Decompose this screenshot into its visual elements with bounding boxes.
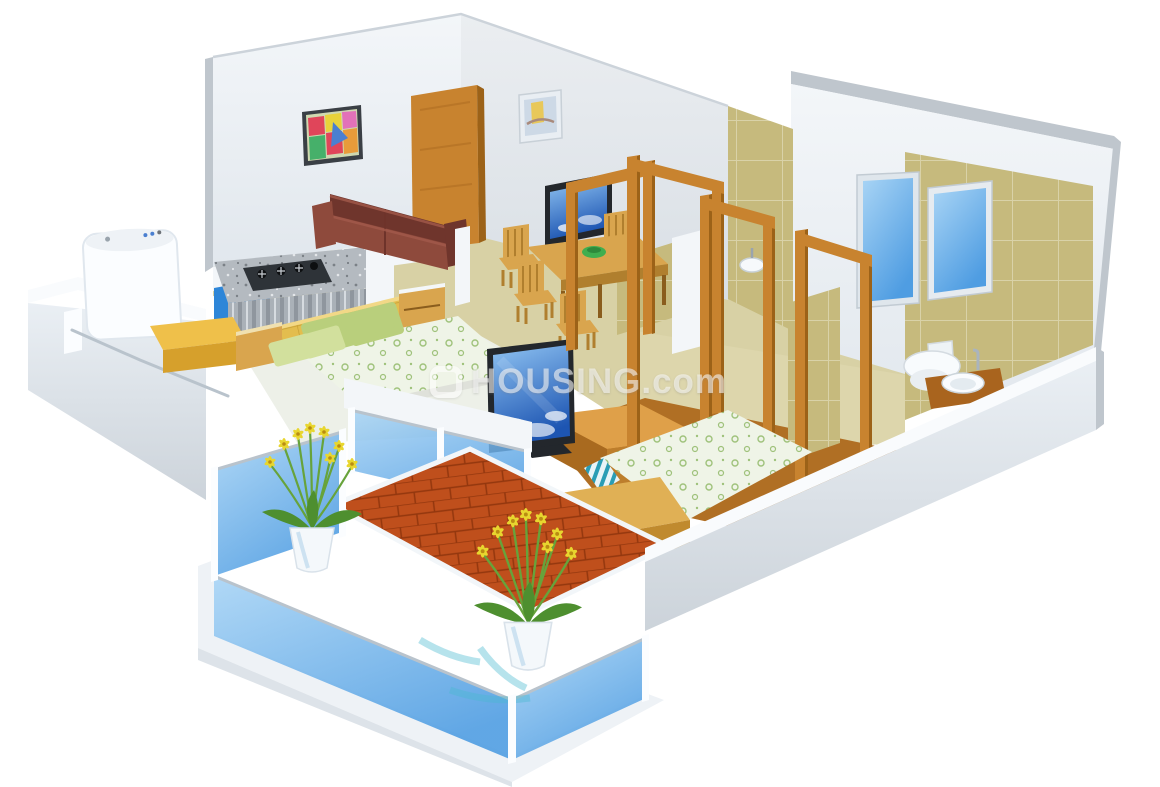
wall-edge-left [205,57,213,272]
abstract-painting [302,105,363,166]
living-bedroom1-divider [455,226,470,306]
washing-machine [82,227,182,341]
floor-plan-render: HOUSING.com [0,0,1160,787]
bedroom2-wall-pillar [672,230,702,354]
housing-logo-icon [430,366,462,398]
window-right [928,181,992,300]
watermark: HOUSING.com [430,362,727,402]
bathroom1-basin [740,258,764,272]
pastel-painting [519,90,562,143]
watermark-text: HOUSING.com [471,362,727,402]
yellow-counter [150,317,246,373]
